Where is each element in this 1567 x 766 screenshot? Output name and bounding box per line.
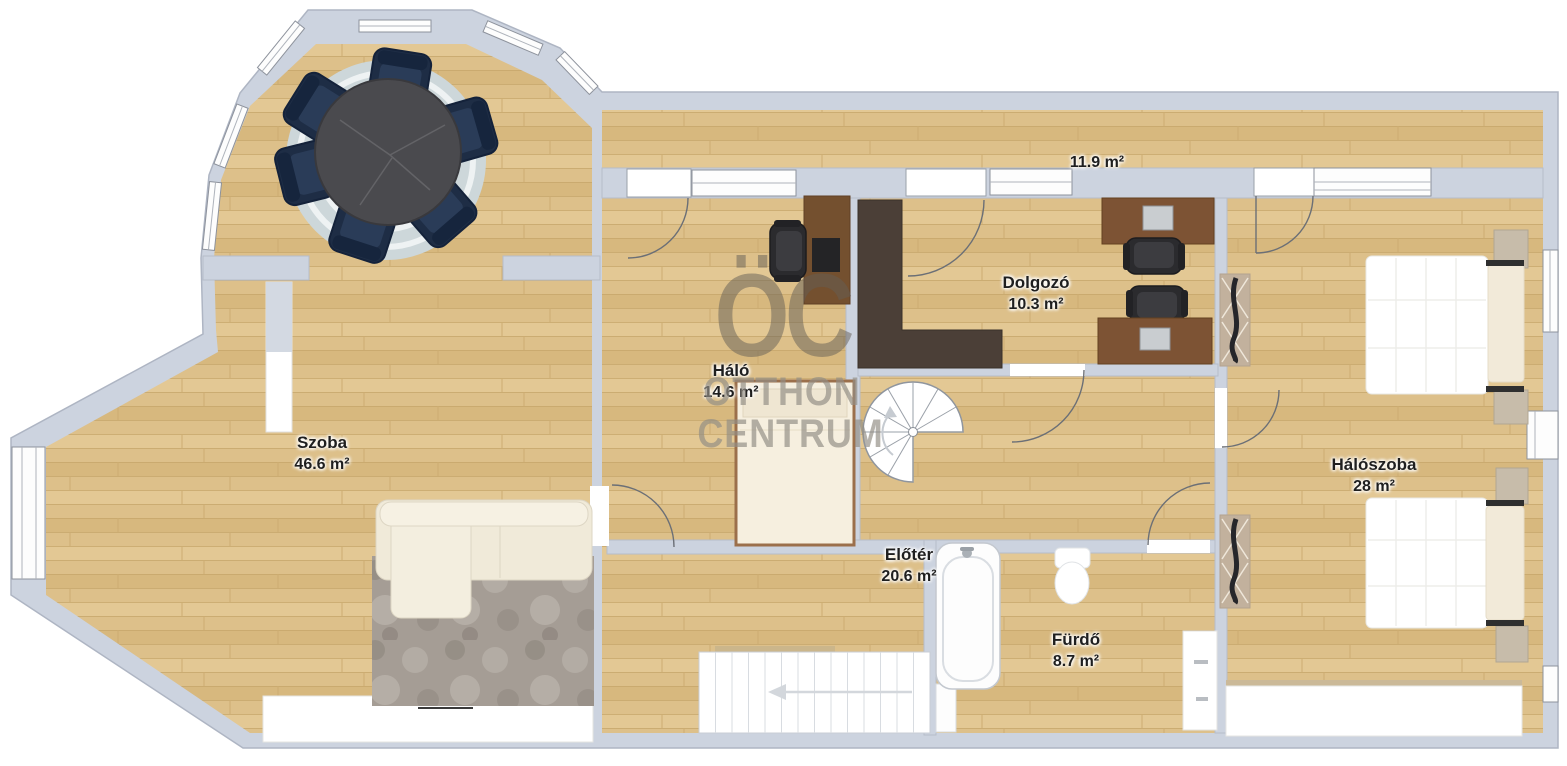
wardrobe-bottom [1226,680,1522,736]
bathroom-vanity [1183,631,1217,730]
room-name: Dolgozó [956,272,1116,294]
room-area: 10.3 m² [956,294,1116,316]
toilet [1055,548,1090,604]
dolgozo-desk-1 [1102,198,1214,244]
room-label-dolgozo: Dolgozó 10.3 m² [956,272,1116,316]
room-area: 14.6 m² [651,382,811,404]
valet-mat-1 [1220,274,1250,366]
office-chair-2 [1126,286,1188,322]
halo-desk [804,196,850,304]
round-table [315,79,461,225]
room-name: Hálószoba [1294,454,1454,476]
room-name: Fürdő [996,629,1156,651]
room-label-haloszoba: Hálószoba 28 m² [1294,454,1454,498]
room-name: Szoba [242,432,402,454]
halo-bed [736,381,854,545]
room-name: Előtér [829,544,989,566]
room-area: 20.6 m² [829,566,989,588]
room-label-eloter: Előtér 20.6 m² [829,544,989,588]
staircase [699,646,930,733]
room-area: 8.7 m² [996,651,1156,673]
valet-mat-2 [1220,515,1250,608]
dolgozo-desk-2 [1098,318,1212,364]
room-area: 11.9 m² [1017,152,1177,174]
office-chair-1 [1123,238,1185,274]
room-label-halo: Háló 14.6 m² [651,360,811,404]
room-label-furdo: Fürdő 8.7 m² [996,629,1156,673]
room-name: Háló [651,360,811,382]
room-label-corridor: 11.9 m² [1017,152,1177,174]
room-area: 28 m² [1294,476,1454,498]
halo-desk-chair [770,220,806,282]
room-area: 46.6 m² [242,454,402,476]
room-label-szoba: Szoba 46.6 m² [242,432,402,476]
floor-plan: Szoba 46.6 m² Háló 14.6 m² Dolgozó 10.3 … [0,0,1567,766]
radiator [266,282,292,432]
